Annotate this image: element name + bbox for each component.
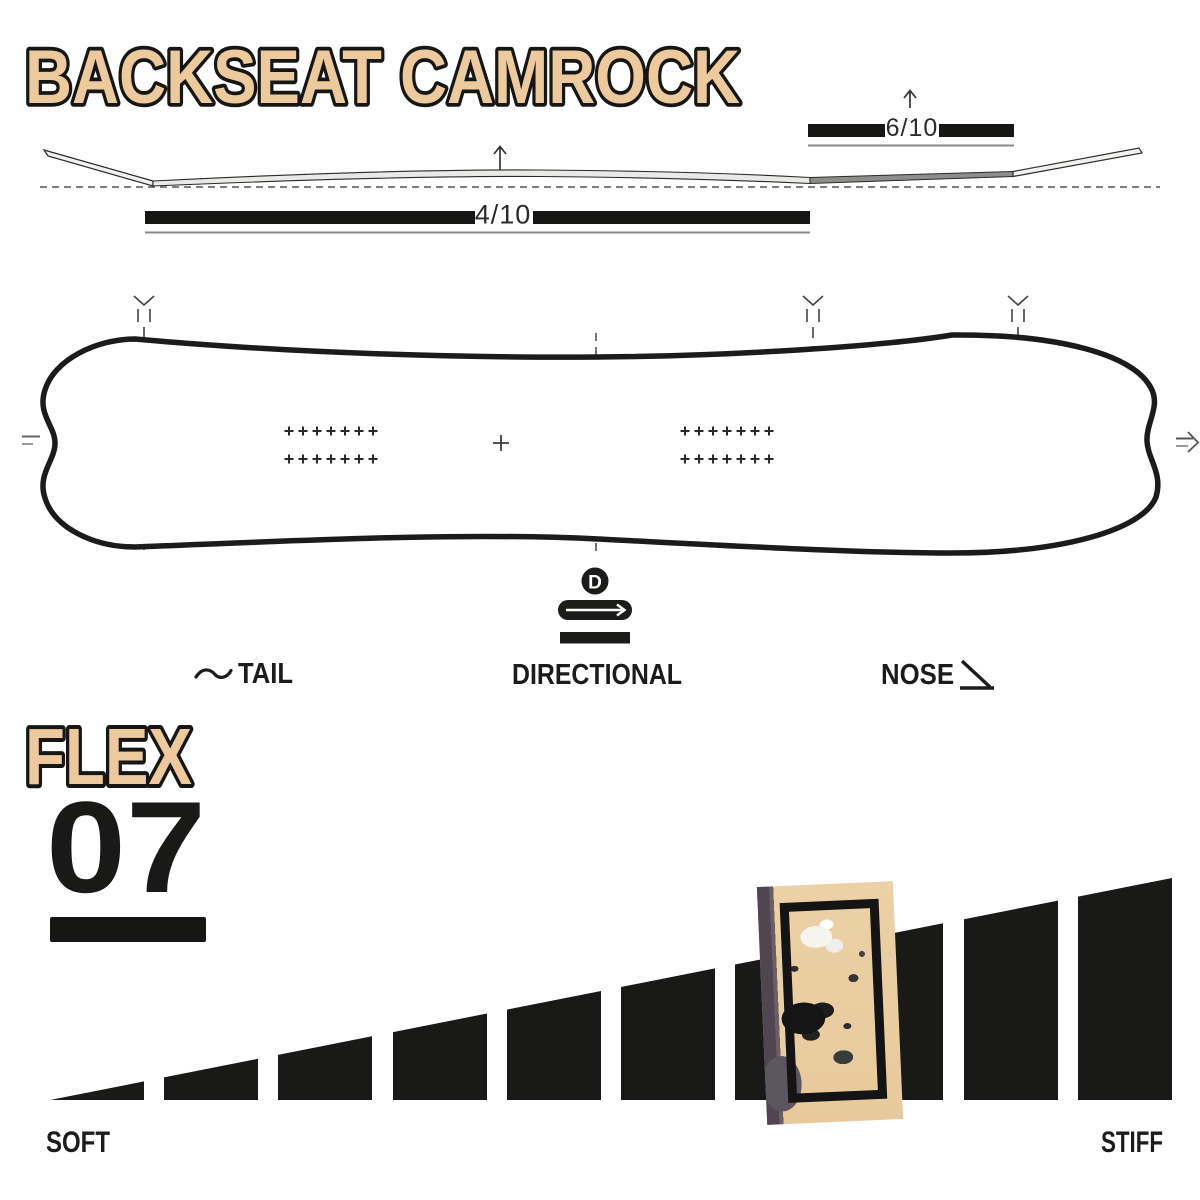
tail-label: TAIL — [238, 658, 293, 690]
flex-bar-5 — [507, 991, 601, 1100]
directional-label: DIRECTIONAL — [512, 659, 682, 691]
flex-bar-3 — [278, 1036, 372, 1100]
directional-letter: D — [588, 573, 602, 594]
profile-camber-section — [153, 170, 810, 186]
rocker-dimension-bar: 6/10 — [808, 114, 1014, 146]
profile-nose-kick — [1013, 148, 1142, 177]
rocker-bar-left — [808, 124, 885, 137]
contact-marker-icon — [1008, 296, 1028, 338]
rocker-bar-right — [939, 124, 1014, 137]
nose-corner-icon — [960, 661, 994, 688]
flex-bar-9 — [964, 901, 1058, 1100]
soft-label: SOFT — [46, 1126, 110, 1159]
snowboard-spec-sheet: BACKSEAT CAMROCK 6/10 4/10 — [0, 0, 1200, 1200]
profile-tail-kick — [44, 150, 153, 186]
profile-rocker-section — [810, 172, 1013, 184]
flex-highlight-bar — [757, 881, 903, 1125]
tail-wave-icon — [196, 670, 231, 677]
directional-icon: D — [558, 568, 632, 644]
rocker-arrow-icon — [904, 91, 916, 109]
board-outline — [43, 335, 1158, 553]
camber-arrow-icon — [494, 147, 506, 171]
flex-highlight-frame — [780, 899, 888, 1103]
contact-marker-icon — [803, 296, 823, 338]
directional-base-bar — [560, 632, 630, 644]
flex-bar-10 — [1078, 878, 1172, 1100]
nose-label: NOSE — [881, 659, 954, 691]
contact-marker-icon — [134, 296, 154, 338]
camber-dimension-bar: 4/10 — [145, 200, 810, 233]
flex-bar-2 — [164, 1059, 258, 1100]
profile-diagram-svg: 6/10 4/10 — [0, 80, 1200, 260]
stiff-label: STIFF — [1101, 1126, 1163, 1159]
nose-direction-arrow-icon — [1176, 432, 1198, 452]
camber-bar-right — [533, 211, 810, 224]
camber-bar-left — [145, 211, 475, 224]
flex-bars — [50, 878, 1172, 1100]
flex-chart-svg: SOFT STIFF — [0, 860, 1200, 1160]
camber-rating-value: 4/10 — [475, 200, 532, 230]
tail-edge-marker-icon — [22, 437, 40, 445]
board-topview-svg: D TAIL DIRECTIONAL NOSE — [0, 280, 1200, 700]
flex-bar-4 — [393, 1014, 487, 1101]
rocker-rating-value: 6/10 — [886, 114, 939, 142]
flex-bar-6 — [621, 968, 715, 1100]
flex-bar-1 — [50, 1081, 144, 1100]
